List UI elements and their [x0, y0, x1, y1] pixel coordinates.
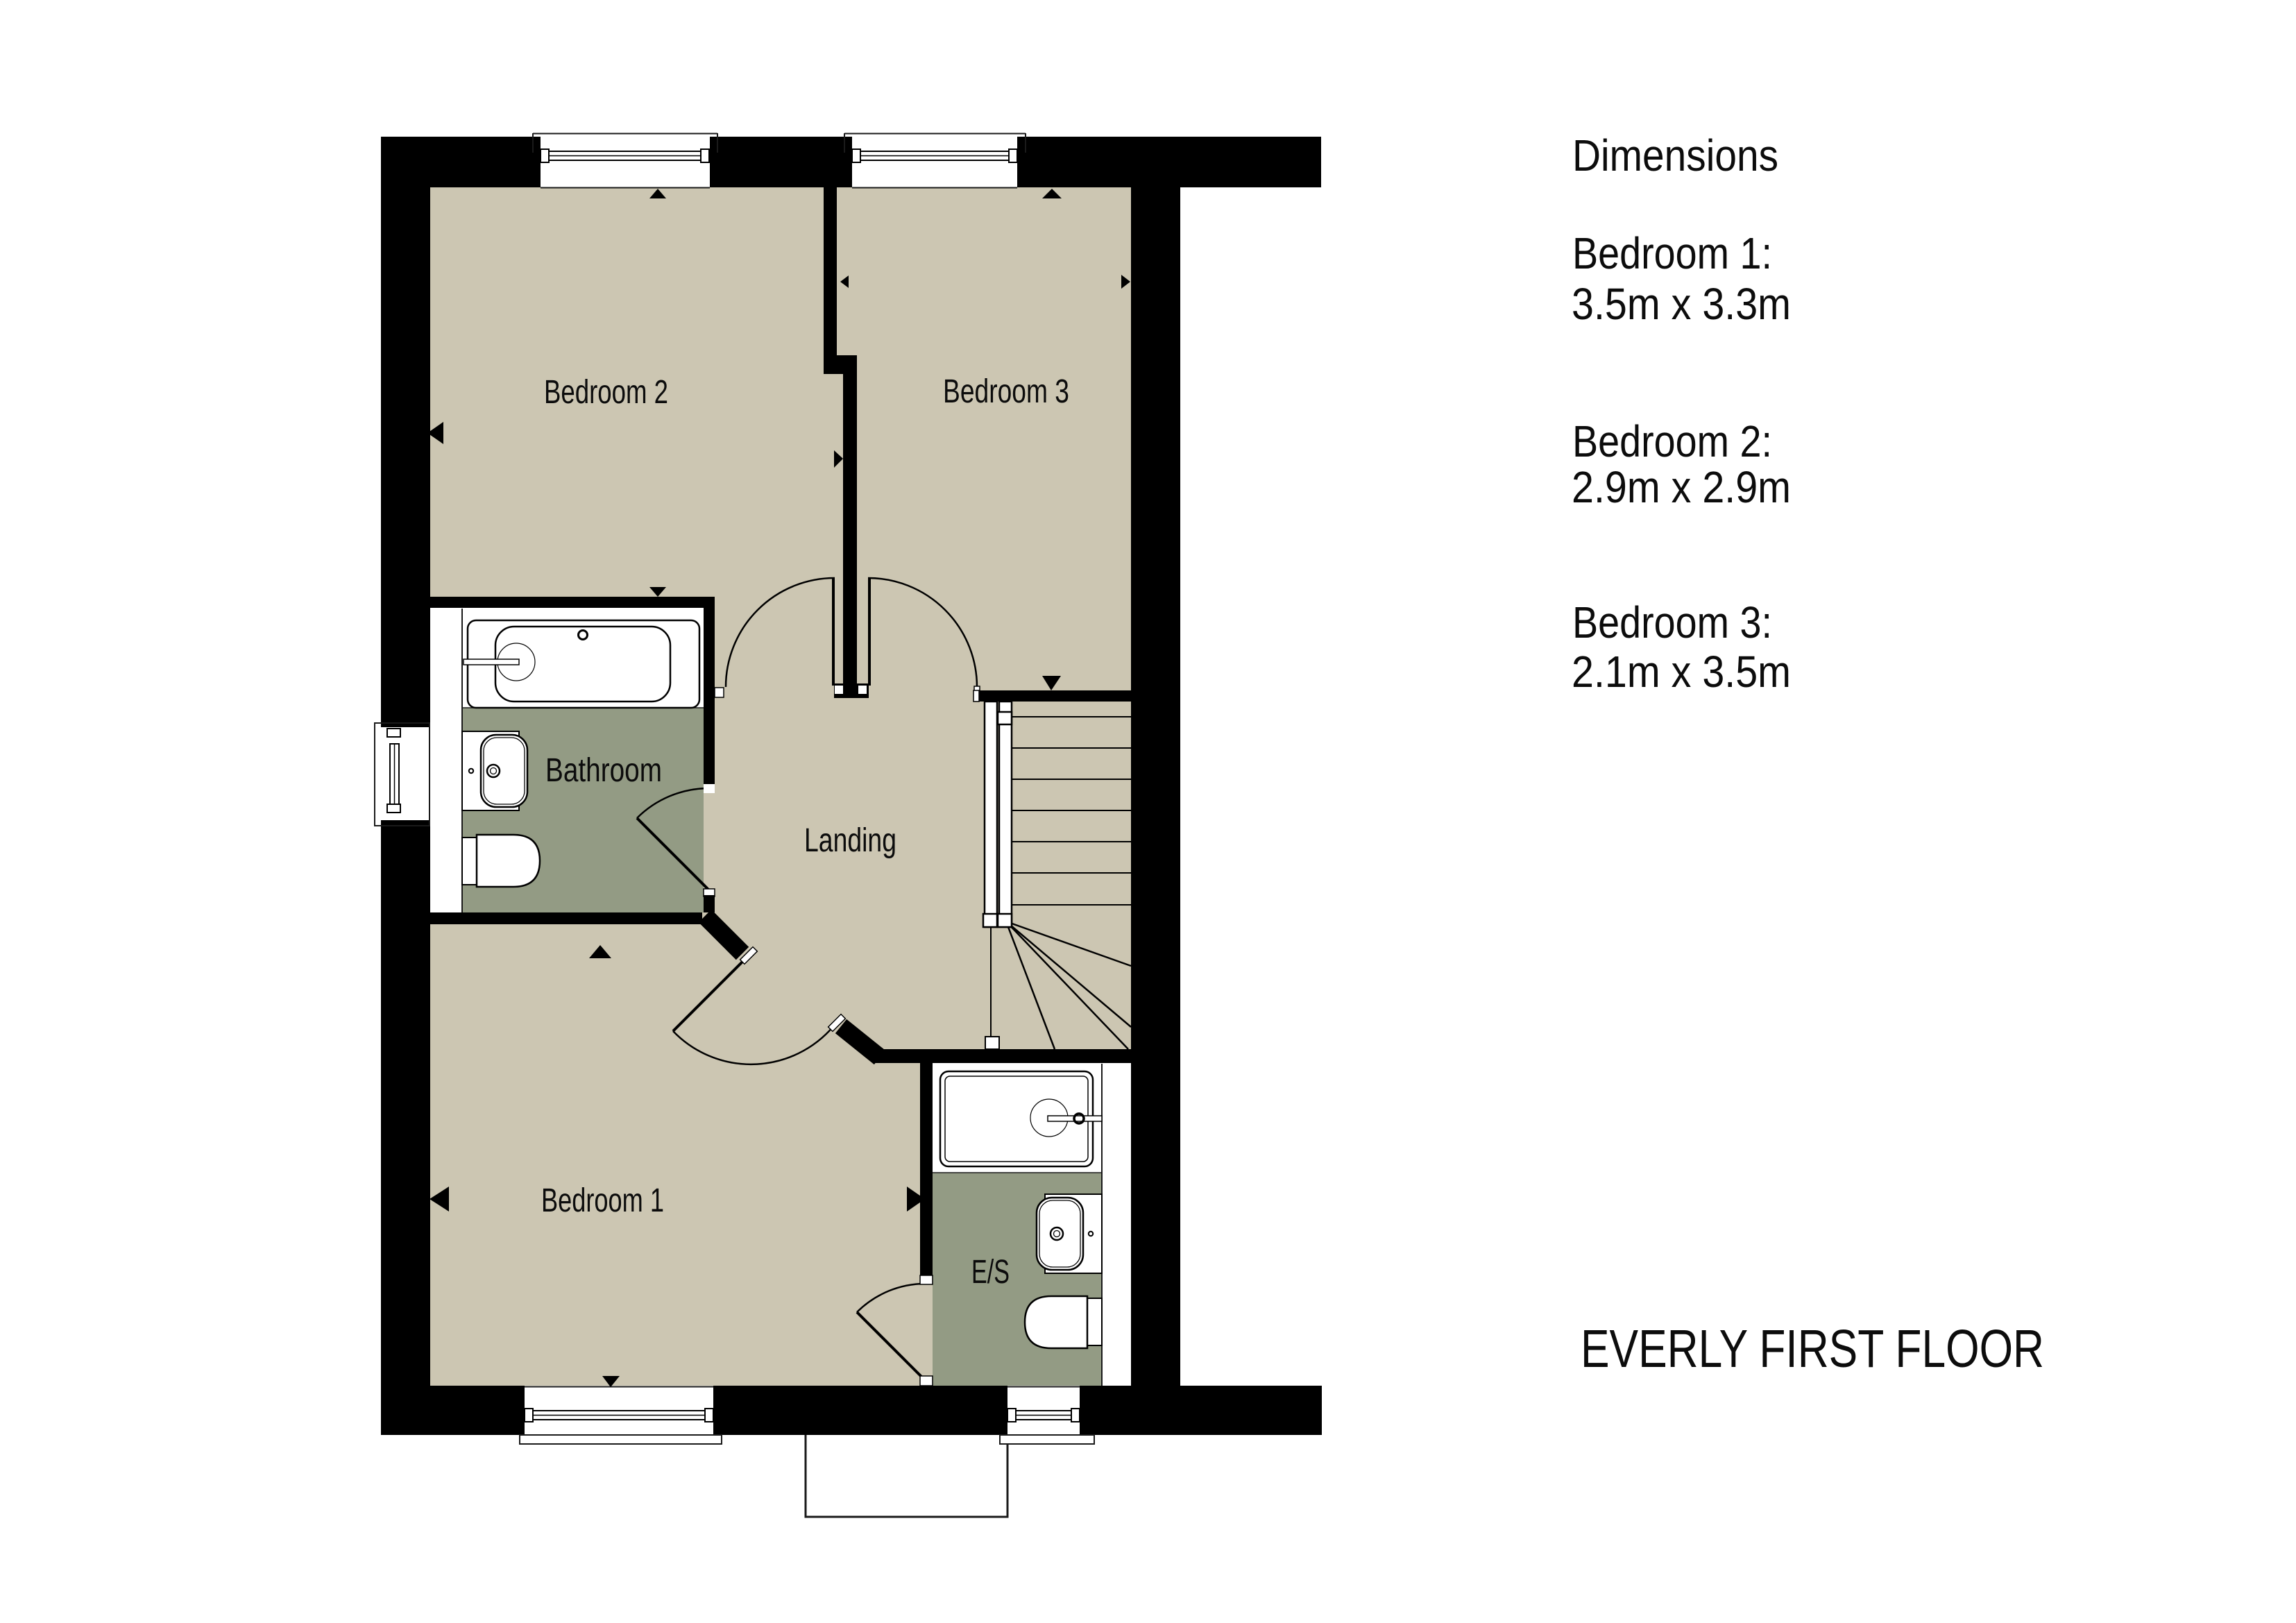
- svg-text:2.9m x 2.9m: 2.9m x 2.9m: [1572, 462, 1791, 512]
- svg-text:Bedroom 3: Bedroom 3: [943, 373, 1069, 410]
- svg-text:3.5m x 3.3m: 3.5m x 3.3m: [1572, 279, 1791, 329]
- svg-text:Bedroom 2: Bedroom 2: [544, 374, 668, 411]
- svg-text:Dimensions: Dimensions: [1572, 130, 1778, 180]
- svg-text:EVERLY FIRST FLOOR: EVERLY FIRST FLOOR: [1581, 1319, 2044, 1379]
- svg-text:Bedroom 1:: Bedroom 1:: [1572, 228, 1772, 278]
- svg-text:2.1m x 3.5m: 2.1m x 3.5m: [1572, 647, 1791, 697]
- svg-text:E/S: E/S: [971, 1254, 1010, 1291]
- svg-text:Landing: Landing: [804, 822, 896, 859]
- svg-text:Bedroom 3:: Bedroom 3:: [1572, 597, 1772, 647]
- svg-text:Bedroom 1: Bedroom 1: [541, 1182, 664, 1219]
- svg-text:Bedroom 2:: Bedroom 2:: [1572, 416, 1772, 466]
- svg-text:Bathroom: Bathroom: [545, 752, 662, 789]
